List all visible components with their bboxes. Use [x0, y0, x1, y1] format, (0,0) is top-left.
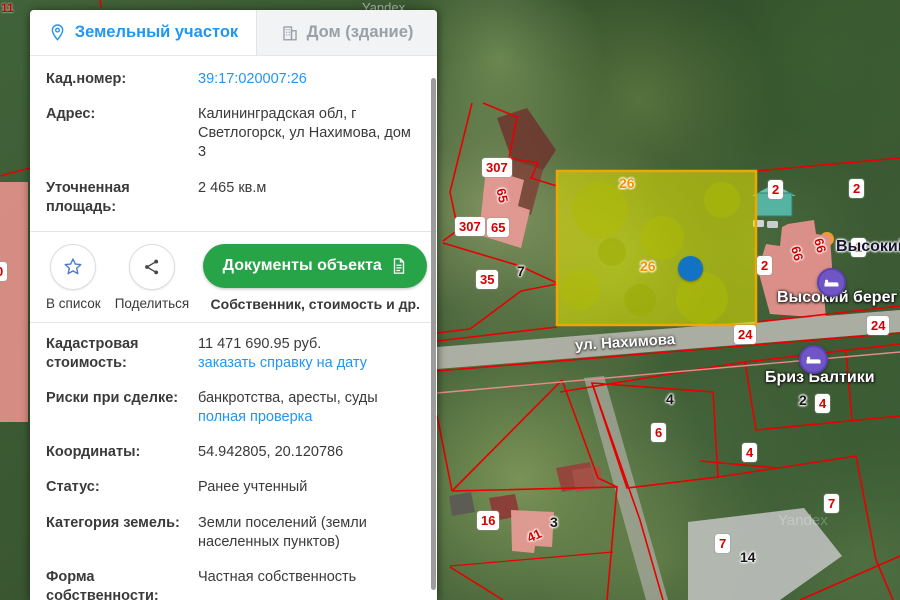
share-button[interactable] [129, 244, 175, 290]
parcel-label[interactable]: 24 [867, 316, 889, 335]
share-label: Поделиться [115, 296, 190, 311]
rotated-parcel-number: 65 [493, 187, 511, 204]
street-name-label: ул. Нахимова [575, 331, 676, 354]
share-icon [142, 257, 162, 277]
hotel-marker[interactable] [817, 268, 846, 297]
corner-parcel-number: 11 [1, 1, 14, 15]
field-value: 54.942805, 20.120786 [198, 443, 421, 462]
selected-parcel-number: 26 [619, 175, 635, 191]
parcel-label[interactable]: 6 [651, 423, 666, 442]
parcel-label[interactable]: 4 [742, 443, 757, 462]
field-status: Статус: Ранее учтенный [30, 470, 437, 505]
field-value: Частная собственность [198, 568, 421, 600]
tab-land-parcel[interactable]: Земельный участок [30, 10, 256, 55]
parcel-label: 0 [0, 262, 7, 281]
bed-icon [806, 354, 821, 365]
divider [30, 231, 437, 232]
field-area: Уточненная площадь: 2 465 кв.м [30, 171, 437, 227]
poi-name-partial: Высокий Б [836, 238, 900, 256]
star-icon [62, 256, 84, 278]
field-value: 2 465 кв.м [198, 179, 421, 217]
field-label: Риски при сделке: [46, 389, 198, 427]
selected-point-marker [678, 256, 703, 281]
parcel-label[interactable]: 2 [757, 256, 772, 275]
parcel-info-panel: Земельный участок Дом (здание) Кад.номер… [30, 10, 437, 600]
add-to-list-label: В список [46, 296, 101, 311]
full-check-link[interactable]: полная проверка [198, 409, 312, 425]
cad-number-link[interactable]: 39:17:020007:26 [198, 71, 307, 87]
panel-scrollbar[interactable] [431, 78, 436, 590]
actions-row: В список Поделиться Док [30, 236, 437, 318]
field-ownership: Форма собственности: Частная собственнос… [30, 560, 437, 600]
parcel-label[interactable]: 2 [849, 179, 864, 198]
house-number: 3 [550, 514, 558, 530]
field-coordinates: Координаты: 54.942805, 20.120786 [30, 435, 437, 470]
tab-label: Дом (здание) [307, 23, 414, 42]
field-label: Кад.номер: [46, 70, 198, 89]
field-label: Адрес: [46, 105, 198, 162]
tab-building[interactable]: Дом (здание) [256, 10, 437, 55]
field-label: Координаты: [46, 443, 198, 462]
divider [30, 322, 437, 323]
document-icon [390, 257, 408, 275]
panel-tabs: Земельный участок Дом (здание) [30, 10, 437, 56]
add-to-list-button[interactable] [50, 244, 96, 290]
field-label: Кадастровая стоимость: [46, 335, 198, 373]
field-label: Уточненная площадь: [46, 179, 198, 217]
panel-body: Кад.номер: 39:17:020007:26 Адрес: Калини… [30, 56, 437, 600]
building-icon [281, 24, 299, 42]
rotated-parcel-number: 66 [811, 237, 829, 255]
field-label: Категория земель: [46, 514, 198, 552]
parcel-label[interactable]: 7 [824, 494, 839, 513]
field-label: Форма собственности: [46, 568, 198, 600]
field-value: банкротства, аресты, суды [198, 389, 421, 408]
parcel-label[interactable]: 24 [734, 325, 756, 344]
documents-caption: Собственник, стоимость и др. [211, 296, 420, 312]
add-to-list-action: В список [46, 244, 101, 311]
field-value: Калининградская обл, г Светлогорск, ул Н… [198, 105, 421, 162]
cadastral-map-app: 307 307 65 35 2 2 2 2 24 24 4 4 6 16 7 7… [0, 0, 900, 600]
field-cad-number: Кад.номер: 39:17:020007:26 [30, 62, 437, 97]
tab-label: Земельный участок [75, 23, 238, 42]
share-action: Поделиться [115, 244, 190, 311]
field-value: 11 471 690.95 руб. [198, 335, 421, 354]
parcel-label[interactable]: 307 [482, 158, 512, 177]
field-address: Адрес: Калининградская обл, г Светлогорс… [30, 97, 437, 170]
object-documents-button[interactable]: Документы объекта [203, 244, 427, 288]
documents-action: Документы объекта Собственник, стоимость… [203, 244, 427, 312]
field-cadastral-cost: Кадастровая стоимость: 11 471 690.95 руб… [30, 327, 437, 381]
field-value: Ранее учтенный [198, 478, 421, 497]
field-risks: Риски при сделке: банкротства, аресты, с… [30, 381, 437, 435]
parcel-label[interactable]: 4 [815, 394, 830, 413]
parcel-label[interactable]: 2 [768, 180, 783, 199]
field-label: Статус: [46, 478, 198, 497]
location-pin-icon [48, 23, 67, 42]
house-number: 2 [799, 392, 807, 408]
object-documents-label: Документы объекта [223, 257, 382, 275]
parcel-label[interactable]: 307 [455, 217, 485, 236]
parcel-label[interactable]: 35 [476, 270, 498, 289]
hotel-marker[interactable] [799, 345, 828, 374]
order-certificate-link[interactable]: заказать справку на дату [198, 355, 367, 371]
selected-parcel-number: 26 [640, 258, 656, 274]
house-number: 14 [740, 549, 756, 565]
parcel-label[interactable]: 7 [715, 534, 730, 553]
parcel-label[interactable]: 16 [477, 511, 499, 530]
map-watermark: Yandex [778, 512, 828, 529]
parcel-label[interactable]: 65 [487, 218, 509, 237]
rotated-parcel-number: 41 [525, 526, 544, 546]
bed-icon [824, 277, 839, 288]
house-number: 4 [666, 391, 674, 407]
field-land-category: Категория земель: Земли поселений (земли… [30, 506, 437, 560]
house-number: 7 [517, 263, 525, 279]
rotated-parcel-number: 66 [788, 245, 806, 263]
field-value: Земли поселений (земли населенных пункто… [198, 514, 421, 552]
